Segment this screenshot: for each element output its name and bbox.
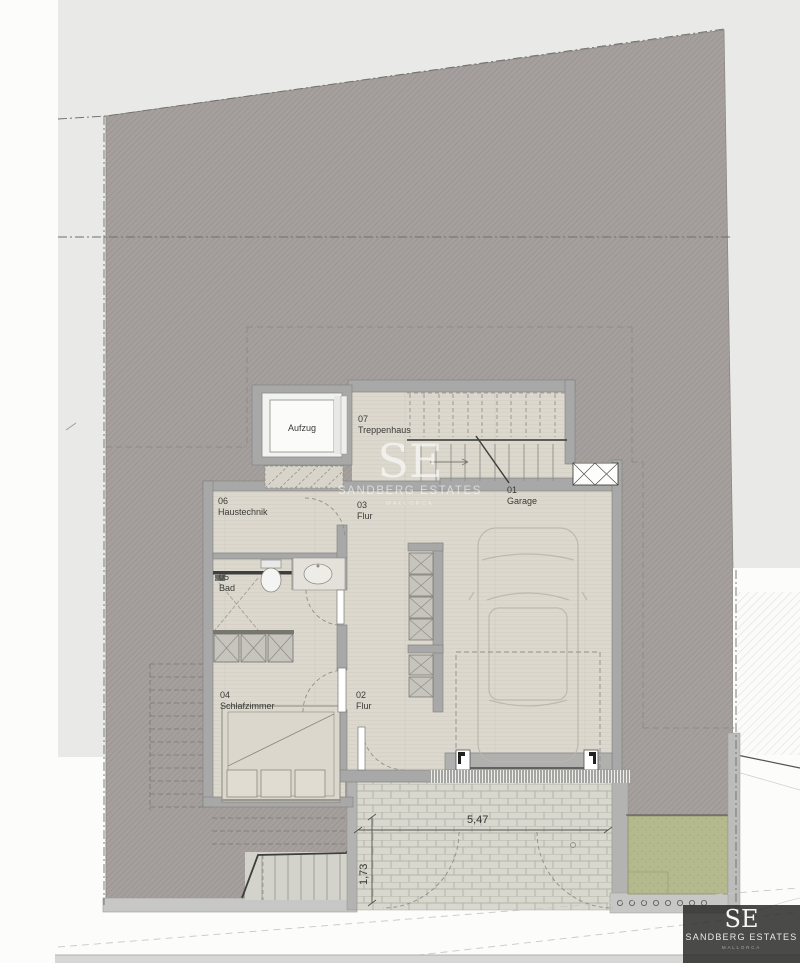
- boundary-wall-strip: [728, 733, 740, 915]
- room-label-aufzug: Aufzug: [270, 423, 334, 434]
- logo-monogram: SE: [725, 906, 759, 932]
- crawl-space-hatch: [265, 466, 343, 488]
- room-name: Flur: [357, 511, 373, 522]
- room-name: Schlafzimmer: [220, 701, 275, 712]
- neighbor-slope-hatch: [737, 592, 800, 755]
- company-logo: SE SANDBERG ESTATES MALLORCA: [683, 905, 800, 963]
- garage-window: [573, 463, 618, 485]
- floor-plan-page: Aufzug 07 Treppenhaus 06 Haustechnik 03 …: [0, 0, 800, 963]
- toilet: [261, 568, 281, 592]
- retaining-wall-band: [103, 898, 357, 912]
- floor-plan-drawing: [0, 0, 800, 963]
- room-number: 04: [220, 690, 275, 701]
- room-name: Aufzug: [270, 423, 334, 434]
- room-label-flur-03: 03 Flur: [357, 500, 373, 521]
- room-label-haustechnik: 06 Haustechnik: [218, 496, 268, 517]
- room-label-treppenhaus: 07 Treppenhaus: [358, 414, 411, 435]
- room-label-garage: 01 Garage: [507, 485, 537, 506]
- room-name: Flur: [356, 701, 372, 712]
- room-garage-floor: [448, 491, 612, 772]
- exterior-steps: [245, 852, 352, 900]
- logo-subtitle: MALLORCA: [722, 945, 761, 950]
- grass-area: [628, 816, 728, 894]
- room-number: 05: [219, 572, 235, 583]
- room-name: Treppenhaus: [358, 425, 411, 436]
- room-number: 06: [218, 496, 268, 507]
- room-label-schlafzimmer: 04 Schlafzimmer: [220, 690, 275, 711]
- drainage-channel: [430, 770, 630, 783]
- room-name: Haustechnik: [218, 507, 268, 518]
- room-label-flur-02: 02 Flur: [356, 690, 372, 711]
- driveway-brick-paving: [357, 782, 612, 910]
- room-number: 02: [356, 690, 372, 701]
- dimension-driveway-width: 5,47: [467, 814, 488, 826]
- room-number: 01: [507, 485, 537, 496]
- room-label-bad: 05 Bad: [219, 572, 235, 593]
- dimension-gate-width: 1,73: [358, 864, 370, 885]
- bed: [222, 706, 340, 802]
- wardrobe-cabinets: [213, 630, 294, 662]
- logo-name: SANDBERG ESTATES: [686, 932, 798, 942]
- room-name: Bad: [219, 583, 235, 594]
- room-treppenhaus-floor: [352, 392, 575, 481]
- room-number: 03: [357, 500, 373, 511]
- room-name: Garage: [507, 496, 537, 507]
- room-number: 07: [358, 414, 411, 425]
